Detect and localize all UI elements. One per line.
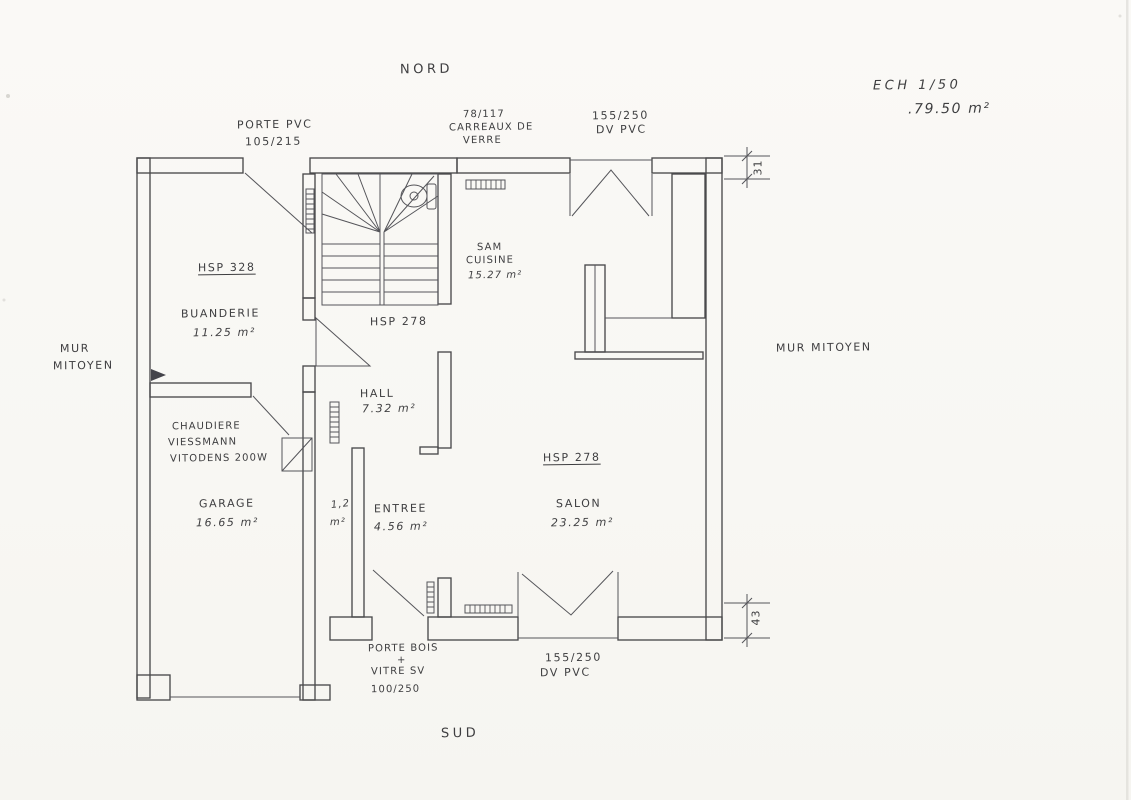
window-north-label-line1: 155/250 (592, 110, 649, 122)
sam-name-line2: CUISINE (466, 256, 514, 267)
dimension-43-label: 43 (751, 610, 762, 626)
glass-block-label-line3: VERRE (463, 136, 502, 146)
entry-door-label-line3: VITRE SV (371, 667, 425, 678)
wc-area-line2: m² (330, 518, 346, 528)
porte-pvc-label-line2: 105/215 (245, 136, 302, 148)
party-wall-left-line1: MUR (60, 343, 90, 354)
boiler-label-line3: VITODENS 200W (170, 453, 268, 464)
party-wall-left-line2: MITOYEN (53, 360, 114, 372)
staircase (322, 174, 438, 305)
entry-door-leaf (373, 570, 424, 616)
chimney-block (575, 174, 705, 359)
radiator-cuisine (466, 180, 505, 189)
glass-block-label-line1: 78/117 (463, 110, 505, 121)
window-south (518, 571, 618, 638)
radiator-stairwell (306, 189, 314, 233)
radiator-entree (427, 582, 434, 613)
entree-name: ENTREE (374, 503, 427, 515)
party-wall-right: MUR MITOYEN (776, 341, 872, 353)
entry-door-label-line4: 100/250 (371, 685, 420, 696)
sam-name-line1: SAM (477, 243, 502, 253)
window-south-label-line1: 155/250 (545, 652, 602, 664)
porte-pvc-label-line1: PORTE PVC (237, 119, 313, 131)
scale-label: ECH 1/50 (873, 78, 962, 92)
door-leaves (245, 173, 424, 616)
boiler-label-line2: VIESSMANN (168, 438, 237, 449)
boiler-label-line1: CHAUDIERE (172, 422, 241, 433)
south-label: SUD (441, 727, 479, 740)
buanderie-hall-door-leaf (316, 318, 370, 366)
window-south-label-line2: DV PVC (540, 667, 591, 679)
wall-arrow-marker (151, 369, 166, 381)
glass-block-label-line2: CARREAUX DE (449, 122, 533, 133)
buanderie-name: BUANDERIE (181, 308, 260, 320)
porte-pvc-leaf (245, 173, 312, 233)
boiler-symbol (282, 438, 312, 471)
floor-plan-drawing (0, 0, 1131, 800)
hall-area: 7.32 m² (362, 403, 416, 415)
north-label: NORD (400, 63, 453, 77)
dimension-43 (724, 594, 770, 647)
dimension-31-label: 31 (753, 160, 764, 176)
total-area-label: .79.50 m² (908, 101, 991, 116)
wc-area-line1: 1,2 (331, 499, 351, 511)
salon-hsp: HSP 278 (543, 452, 601, 464)
garage-name: GARAGE (199, 498, 255, 510)
buanderie-hsp: HSP 328 (198, 262, 256, 274)
buanderie-area: 11.25 m² (193, 327, 256, 339)
salon-name: SALON (556, 498, 601, 510)
entry-door-label-line1: PORTE BOIS (368, 644, 439, 655)
toilet (401, 184, 436, 209)
radiator-wc (330, 402, 339, 443)
scanned-floor-plan-page: { "header": { "north": "NORD", "south": … (0, 0, 1131, 800)
window-north-label-line2: DV PVC (596, 124, 647, 136)
scan-artifacts (3, 0, 1129, 800)
buanderie-garage-door-leaf (253, 396, 289, 435)
garage-area: 16.65 m² (196, 517, 259, 529)
hall-name: HALL (360, 388, 395, 399)
radiator-salon (465, 605, 512, 613)
window-north (570, 160, 652, 216)
sam-area: 15.27 m² (468, 271, 522, 282)
entree-area: 4.56 m² (374, 521, 428, 533)
salon-area: 23.25 m² (551, 517, 614, 529)
entry-door-label-line2: + (397, 656, 407, 666)
hall-hsp: HSP 278 (370, 316, 428, 328)
